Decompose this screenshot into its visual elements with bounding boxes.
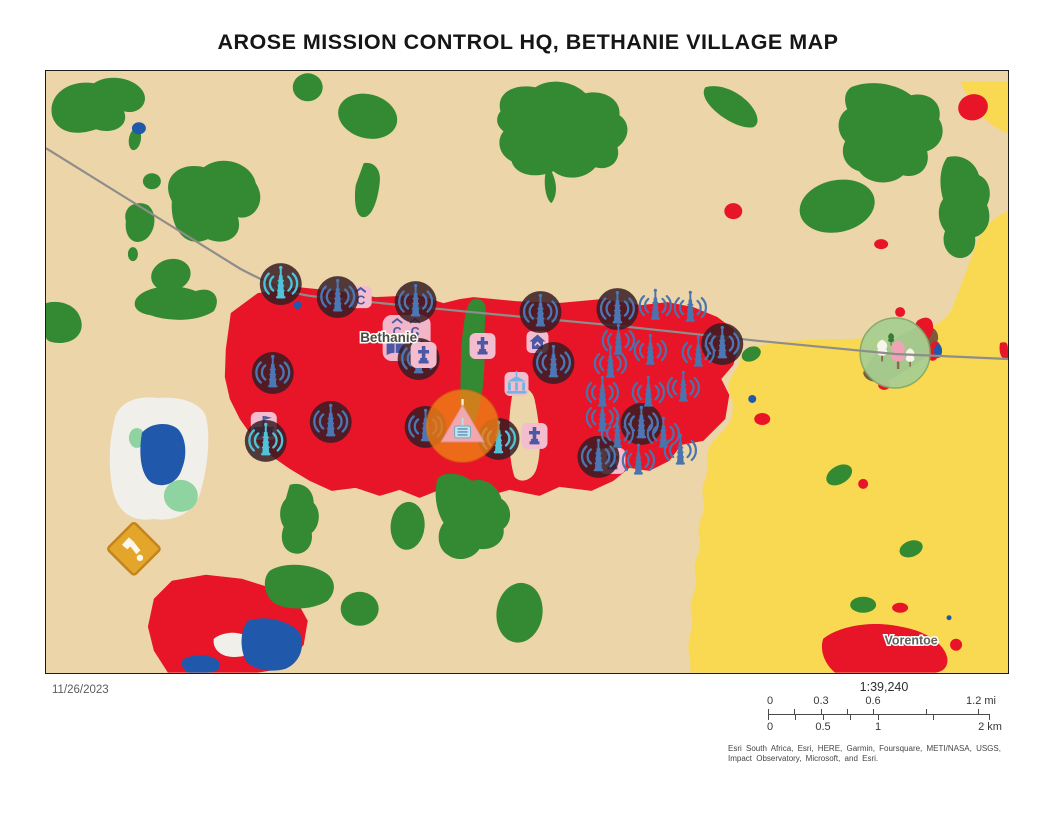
church-icon[interactable] [411, 342, 437, 368]
scale-mi-12: 1.2 mi [966, 695, 996, 707]
scale-mi-03: 0.3 [813, 695, 828, 707]
vegetation-patch [128, 247, 138, 261]
scale-miles-labels: 0 0.3 0.6 1.2 mi [768, 695, 1000, 708]
water-dot [947, 615, 952, 620]
built-up-patch [874, 239, 888, 249]
built-up-patch [724, 203, 742, 219]
built-up-patch [754, 413, 770, 425]
tower-dark-teal-icon[interactable] [245, 420, 287, 462]
vegetation-patch [293, 73, 323, 101]
landcover-regions [46, 71, 1008, 672]
scale-km-0: 0 [767, 721, 773, 733]
church-icon[interactable] [470, 333, 496, 359]
tower-dark-icon[interactable] [520, 291, 562, 333]
scale-mi-0: 0 [767, 695, 773, 707]
pan-vegetation [164, 480, 198, 512]
tower-dark-icon[interactable] [701, 323, 743, 365]
label-bethanie: Bethanie [360, 330, 417, 345]
tower-dark-teal-icon[interactable] [260, 263, 302, 305]
tower-dark-icon[interactable] [317, 276, 359, 318]
scale-km-1: 1 [875, 721, 881, 733]
vegetation-patch [143, 173, 161, 189]
tower-dark-icon[interactable] [310, 401, 352, 443]
map-date: 11/26/2023 [52, 684, 109, 696]
hq-icon[interactable] [427, 390, 499, 462]
built-up-patch [895, 307, 905, 317]
scale-bar: 1:39,240 0 0.3 0.6 1.2 mi 0 0.5 1 2 km [768, 680, 1000, 734]
scale-km-2: 2 km [978, 721, 1002, 733]
map-document: AROSE MISSION CONTROL HQ, BETHANIE VILLA… [0, 0, 1056, 816]
tower-dark-icon[interactable] [395, 281, 437, 323]
vegetation-patch [497, 82, 627, 178]
built-up-patch [892, 603, 908, 613]
attribution-line-2: Impact Observatory, Microsoft, and Esri. [728, 754, 1028, 764]
scale-ratio: 1:39,240 [768, 680, 1000, 695]
scale-km-labels: 0 0.5 1 2 km [768, 721, 1000, 734]
built-up-patch [858, 479, 868, 489]
tower-dark-icon[interactable] [596, 288, 638, 330]
built-up-patch [950, 639, 962, 651]
scale-bar-line [768, 708, 1000, 721]
scale-km-05: 0.5 [815, 721, 830, 733]
scale-mi-06: 0.6 [865, 695, 880, 707]
church-icon[interactable] [522, 423, 548, 449]
map-canvas: C C C [46, 71, 1008, 673]
water-dot [748, 395, 756, 403]
label-vorentoe: Vorentoe [885, 634, 938, 648]
attribution: Esri South Africa, Esri, HERE, Garmin, F… [728, 744, 1028, 764]
tower-dark-icon[interactable] [577, 436, 619, 478]
water-dot [132, 122, 146, 134]
vegetation-patch [850, 597, 876, 613]
vegetation-patch [341, 592, 379, 626]
tower-dark-icon[interactable] [532, 342, 574, 384]
page-title: AROSE MISSION CONTROL HQ, BETHANIE VILLA… [0, 30, 1056, 55]
bank-icon[interactable] [505, 371, 529, 396]
water-dot [294, 301, 302, 309]
attribution-line-1: Esri South Africa, Esri, HERE, Garmin, F… [728, 744, 1028, 754]
map-frame[interactable]: C C C [45, 70, 1009, 674]
tower-dark-icon[interactable] [252, 352, 294, 394]
